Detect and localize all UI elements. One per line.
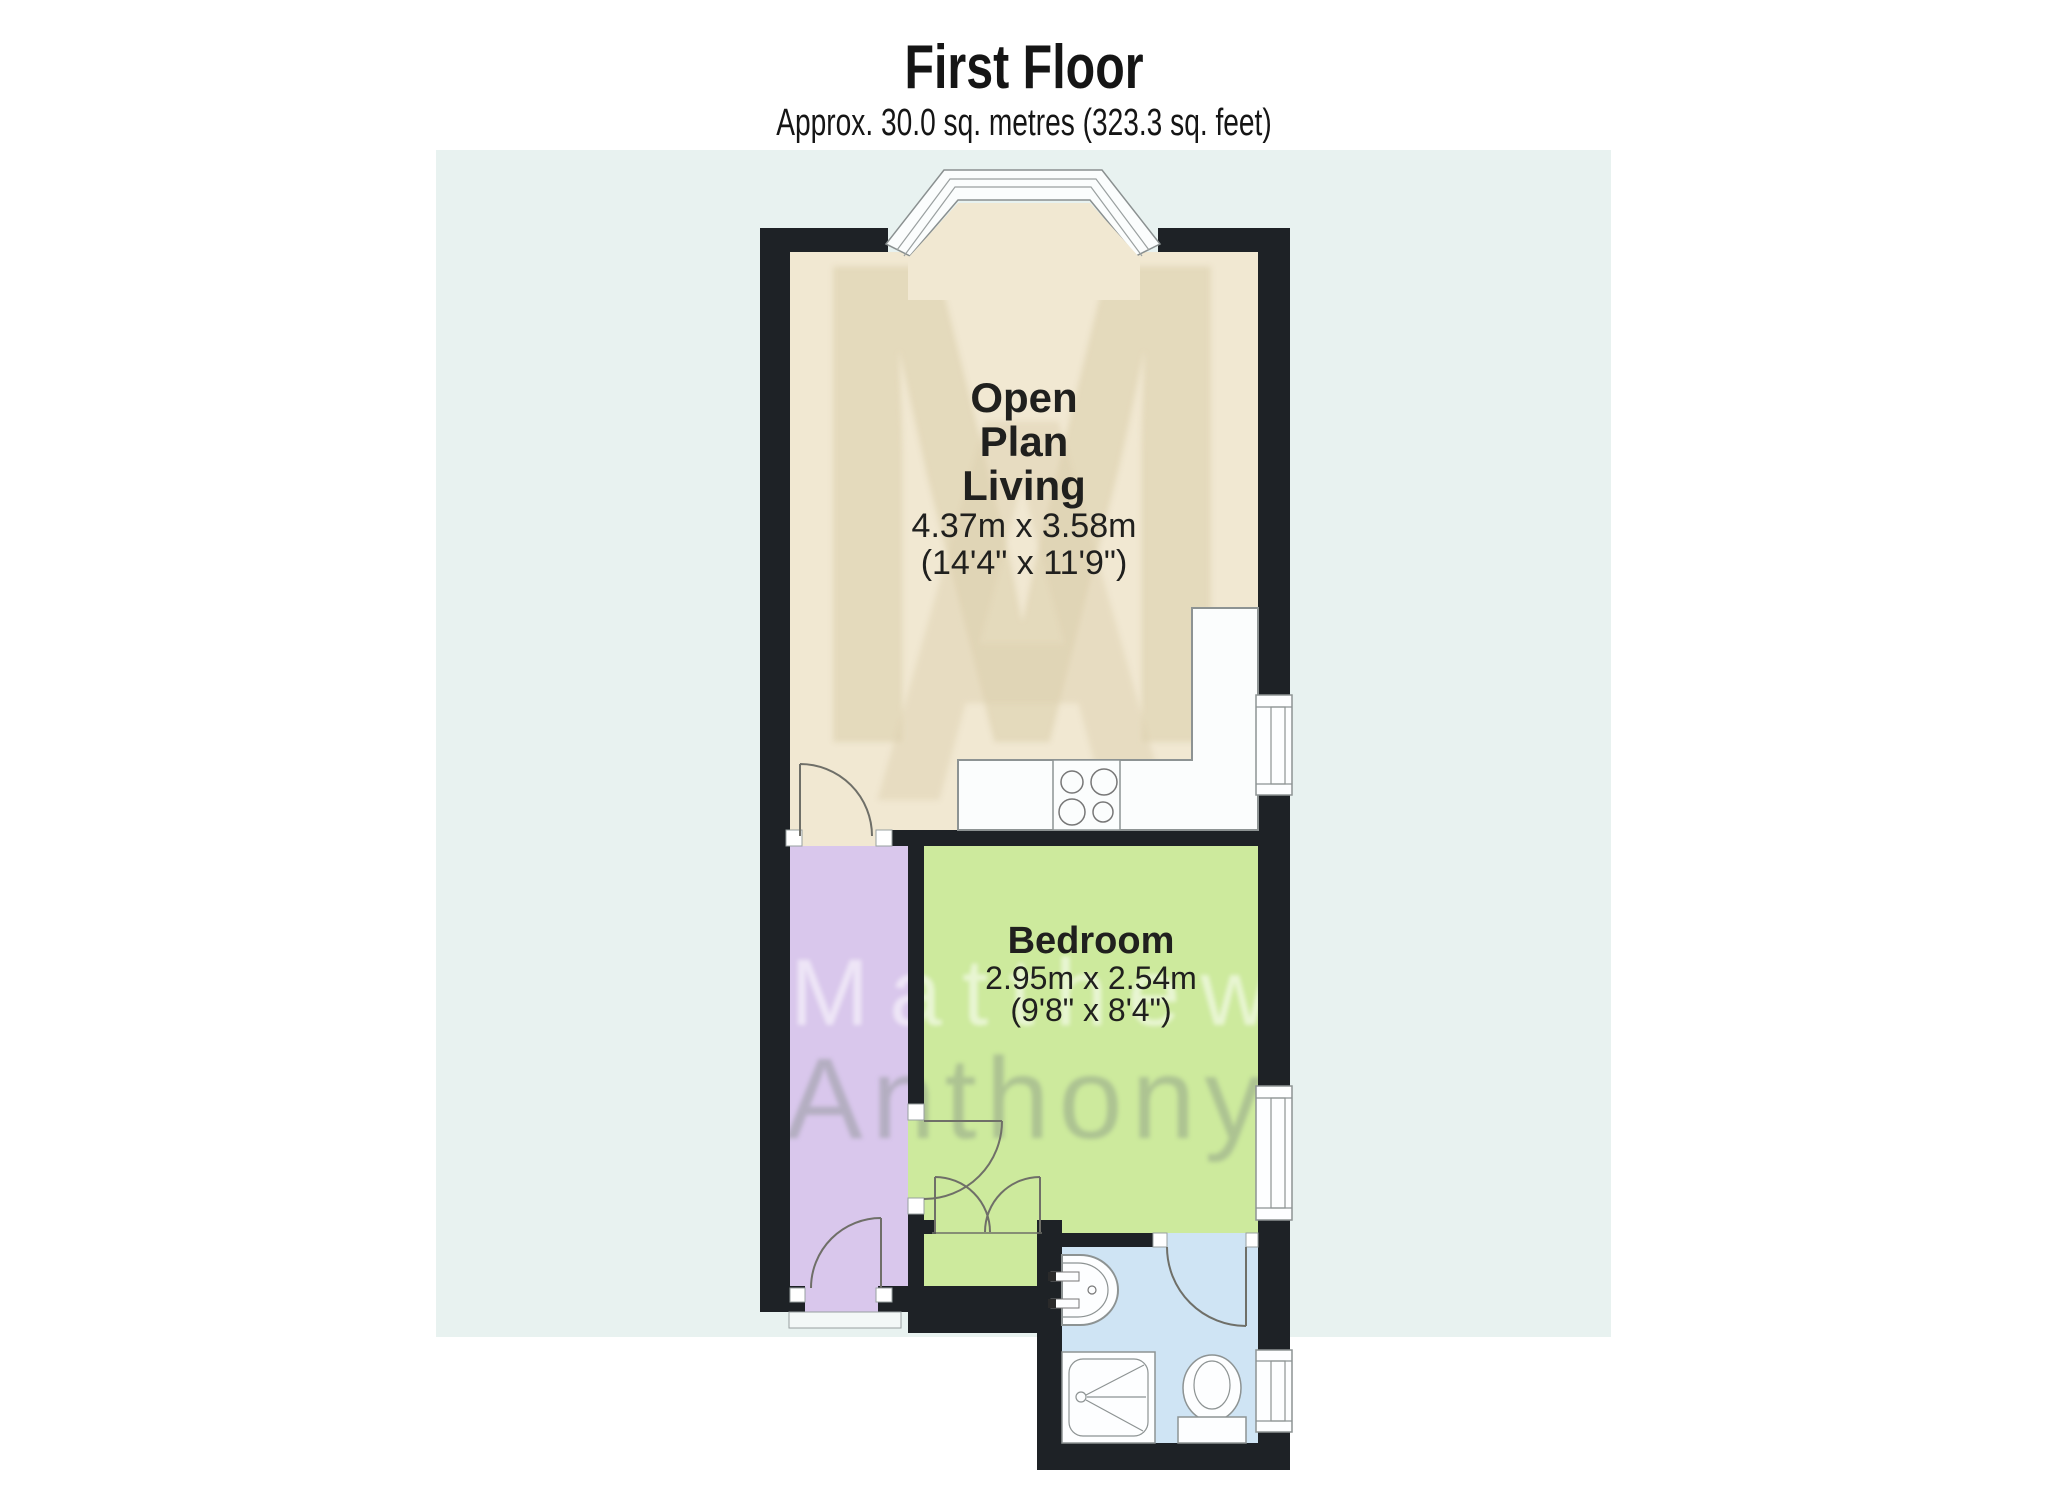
door-jamb	[1153, 1233, 1167, 1247]
living-room-window	[1256, 695, 1292, 795]
window-frame	[1256, 695, 1292, 795]
wall-bathroom-top	[1062, 1233, 1167, 1247]
floor-plan-drawing: M A Matthew Anthony	[0, 0, 2048, 1489]
room-name: Bedroom	[924, 920, 1258, 962]
window-frame	[1256, 1350, 1292, 1432]
bathroom-window	[1256, 1350, 1292, 1432]
bedroom-window	[1256, 1086, 1292, 1220]
room-name-line: Living	[790, 464, 1258, 508]
room-dimensions-metric: 2.95m x 2.54m	[924, 962, 1258, 994]
floorplan-page: First Floor Approx. 30.0 sq. metres (323…	[0, 0, 2048, 1489]
room-dimensions-imperial: (9'8" x 8'4")	[924, 994, 1258, 1026]
window-frame	[1256, 1086, 1292, 1220]
toilet	[1178, 1355, 1246, 1443]
room-name-line: Open	[790, 376, 1258, 420]
sink-tap-handle	[1048, 1299, 1056, 1308]
wall-living-bottom	[878, 830, 1258, 846]
door-jamb	[908, 1198, 924, 1214]
door-jamb	[1246, 1233, 1258, 1247]
bedroom-label: Bedroom 2.95m x 2.54m (9'8" x 8'4")	[924, 920, 1258, 1026]
door-jamb	[790, 1288, 805, 1302]
stove-burner	[1091, 769, 1117, 795]
shower-drain	[1076, 1392, 1086, 1402]
wall-hall-bedroom-upper	[908, 846, 924, 1120]
wall-bathroom-bottom	[1037, 1443, 1290, 1470]
sink-tap-handle	[1048, 1272, 1056, 1281]
closet-alcove-floor	[924, 1233, 1037, 1286]
entrance-threshold	[789, 1312, 901, 1328]
stove-burner	[1059, 799, 1085, 825]
room-dimensions-imperial: (14'4" x 11'9")	[790, 545, 1258, 582]
shower	[1062, 1352, 1155, 1443]
living-room-label: Open Plan Living 4.37m x 3.58m (14'4" x …	[790, 376, 1258, 582]
wall-right	[1258, 228, 1290, 1470]
room-dimensions-metric: 4.37m x 3.58m	[790, 508, 1258, 545]
stove-burner	[1093, 802, 1113, 822]
bathroom-door-opening	[1167, 1233, 1246, 1247]
wall-closet-nub	[921, 1220, 936, 1234]
toilet-bowl	[1183, 1355, 1241, 1421]
door-jamb	[876, 830, 892, 846]
entrance-door-opening	[805, 1286, 878, 1312]
room-name-line: Plan	[790, 420, 1258, 464]
door-jamb	[908, 1104, 924, 1120]
toilet-cistern	[1178, 1417, 1246, 1443]
wall-top-left	[760, 228, 888, 252]
watermark-line2: Anthony	[786, 1035, 1271, 1163]
door-jamb	[876, 1288, 892, 1302]
stove-burner	[1061, 771, 1083, 793]
wall-bathroom-left	[1037, 1220, 1062, 1470]
wall-left	[760, 228, 790, 1312]
